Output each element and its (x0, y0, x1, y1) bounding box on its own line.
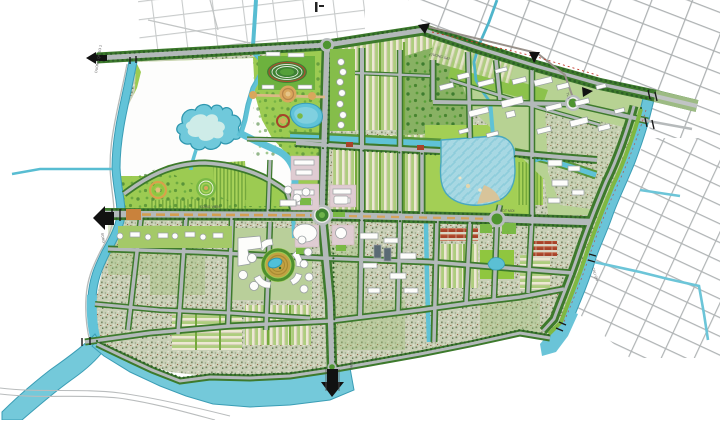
svg-text:CONG VIEN: CONG VIEN (200, 205, 220, 209)
svg-text:CANG: CANG (349, 360, 353, 371)
svg-text:KDT MOI: KDT MOI (500, 209, 515, 213)
